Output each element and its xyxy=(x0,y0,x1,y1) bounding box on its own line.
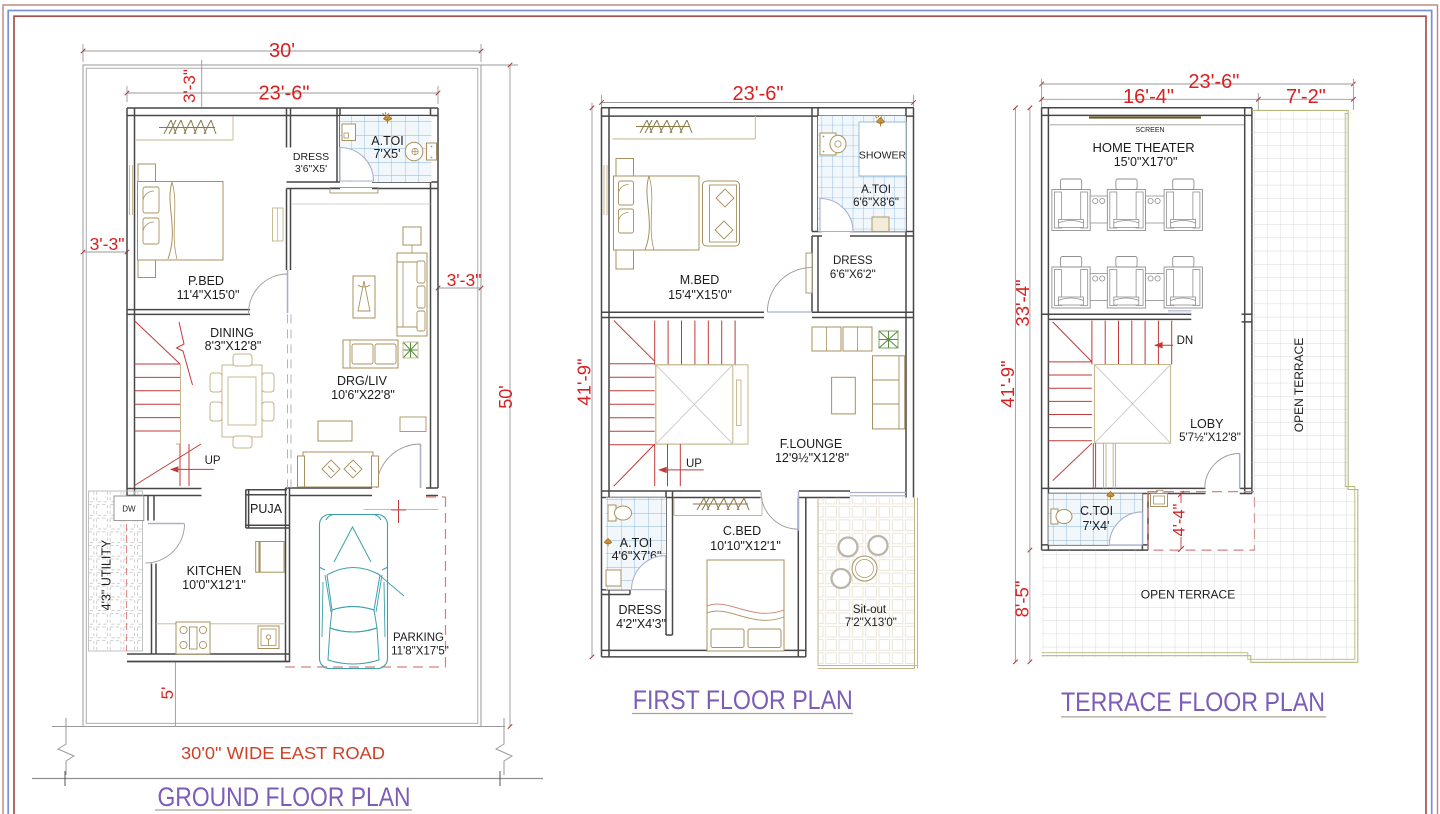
svg-text:UP: UP xyxy=(205,455,221,467)
svg-text:8'-5": 8'-5" xyxy=(1012,581,1033,618)
svg-text:C.BED: C.BED xyxy=(723,524,761,538)
svg-text:7'-2": 7'-2" xyxy=(1286,86,1326,108)
svg-text:33'-4": 33'-4" xyxy=(1012,279,1033,326)
svg-text:3'6"X5': 3'6"X5' xyxy=(295,163,327,175)
svg-text:OPEN TERRACE: OPEN TERRACE xyxy=(1141,588,1235,602)
svg-text:KITCHEN: KITCHEN xyxy=(187,564,242,578)
svg-text:10'10"X12'1": 10'10"X12'1" xyxy=(710,539,781,553)
svg-text:F.LOUNGE: F.LOUNGE xyxy=(780,437,843,451)
svg-text:41'-9": 41'-9" xyxy=(574,358,595,405)
svg-text:PUJA: PUJA xyxy=(250,502,283,516)
svg-text:23'-6": 23'-6" xyxy=(1188,71,1239,93)
svg-text:7'X5': 7'X5' xyxy=(373,147,400,161)
svg-text:4'-4": 4'-4" xyxy=(1171,503,1189,536)
svg-text:SCREEN: SCREEN xyxy=(1135,127,1164,134)
svg-text:6'6"X6'2": 6'6"X6'2" xyxy=(830,269,876,281)
svg-text:SHOWER: SHOWER xyxy=(859,150,907,162)
svg-text:A.TOI: A.TOI xyxy=(861,184,891,196)
svg-text:P.BED: P.BED xyxy=(188,274,224,288)
svg-text:DRESS: DRESS xyxy=(833,255,873,267)
svg-text:3'-3": 3'-3" xyxy=(180,69,199,103)
svg-text:FIRST FLOOR PLAN: FIRST FLOOR PLAN xyxy=(633,685,853,715)
svg-text:TERRACE FLOOR PLAN: TERRACE FLOOR PLAN xyxy=(1061,687,1325,717)
svg-text:DINING: DINING xyxy=(210,326,254,340)
svg-text:3'-3": 3'-3" xyxy=(447,270,482,290)
svg-text:DN: DN xyxy=(1177,335,1194,347)
svg-text:7'2"X13'0": 7'2"X13'0" xyxy=(845,617,897,629)
svg-text:11'8"X17'5": 11'8"X17'5" xyxy=(391,646,449,658)
svg-text:GROUND FLOOR PLAN: GROUND FLOOR PLAN xyxy=(158,782,411,812)
svg-text:41'-9": 41'-9" xyxy=(997,360,1018,407)
svg-text:UP: UP xyxy=(686,458,702,470)
svg-text:23'-6": 23'-6" xyxy=(733,83,784,105)
svg-text:HOME THEATER: HOME THEATER xyxy=(1093,140,1195,155)
svg-text:DRESS: DRESS xyxy=(618,603,661,617)
svg-text:16'-4": 16'-4" xyxy=(1123,86,1174,108)
svg-text:M.BED: M.BED xyxy=(680,273,720,287)
svg-text:15'0"X17'0": 15'0"X17'0" xyxy=(1114,155,1178,169)
svg-text:15'4"X15'0": 15'4"X15'0" xyxy=(668,288,732,302)
svg-text:11'4"X15'0": 11'4"X15'0" xyxy=(177,288,240,302)
svg-text:4'2"X4'3": 4'2"X4'3" xyxy=(616,617,666,631)
svg-text:DRESS: DRESS xyxy=(293,151,329,163)
svg-text:5'7½"X12'8": 5'7½"X12'8" xyxy=(1179,432,1241,444)
svg-text:A.TOI: A.TOI xyxy=(620,536,652,550)
svg-text:23'-6": 23'-6" xyxy=(259,83,310,105)
svg-text:DW: DW xyxy=(122,505,136,514)
svg-text:3'-3": 3'-3" xyxy=(90,234,125,254)
svg-text:30': 30' xyxy=(269,40,295,62)
svg-text:6'6"X8'6": 6'6"X8'6" xyxy=(853,197,899,209)
svg-text:LOBY: LOBY xyxy=(1190,417,1224,431)
svg-text:5': 5' xyxy=(158,687,177,700)
svg-text:4'3" UTILITY: 4'3" UTILITY xyxy=(100,539,114,610)
svg-text:DRG/LIV: DRG/LIV xyxy=(337,374,388,388)
svg-text:12'9½"X12'8": 12'9½"X12'8" xyxy=(775,451,849,465)
svg-text:8'3"X12'8": 8'3"X12'8" xyxy=(205,339,262,353)
svg-text:7'X4': 7'X4' xyxy=(1082,519,1109,533)
svg-text:10'6"X22'8": 10'6"X22'8" xyxy=(331,388,395,402)
svg-text:50': 50' xyxy=(496,385,516,408)
svg-text:A.TOI: A.TOI xyxy=(371,134,403,148)
svg-text:30'0" WIDE EAST ROAD: 30'0" WIDE EAST ROAD xyxy=(181,743,385,763)
svg-text:10'0"X12'1": 10'0"X12'1" xyxy=(182,578,246,592)
svg-text:PARKING: PARKING xyxy=(393,632,444,644)
svg-text:Sit-out: Sit-out xyxy=(853,604,887,616)
svg-text:OPEN TERRACE: OPEN TERRACE xyxy=(1292,338,1306,432)
svg-text:C.TOI: C.TOI xyxy=(1080,504,1113,518)
